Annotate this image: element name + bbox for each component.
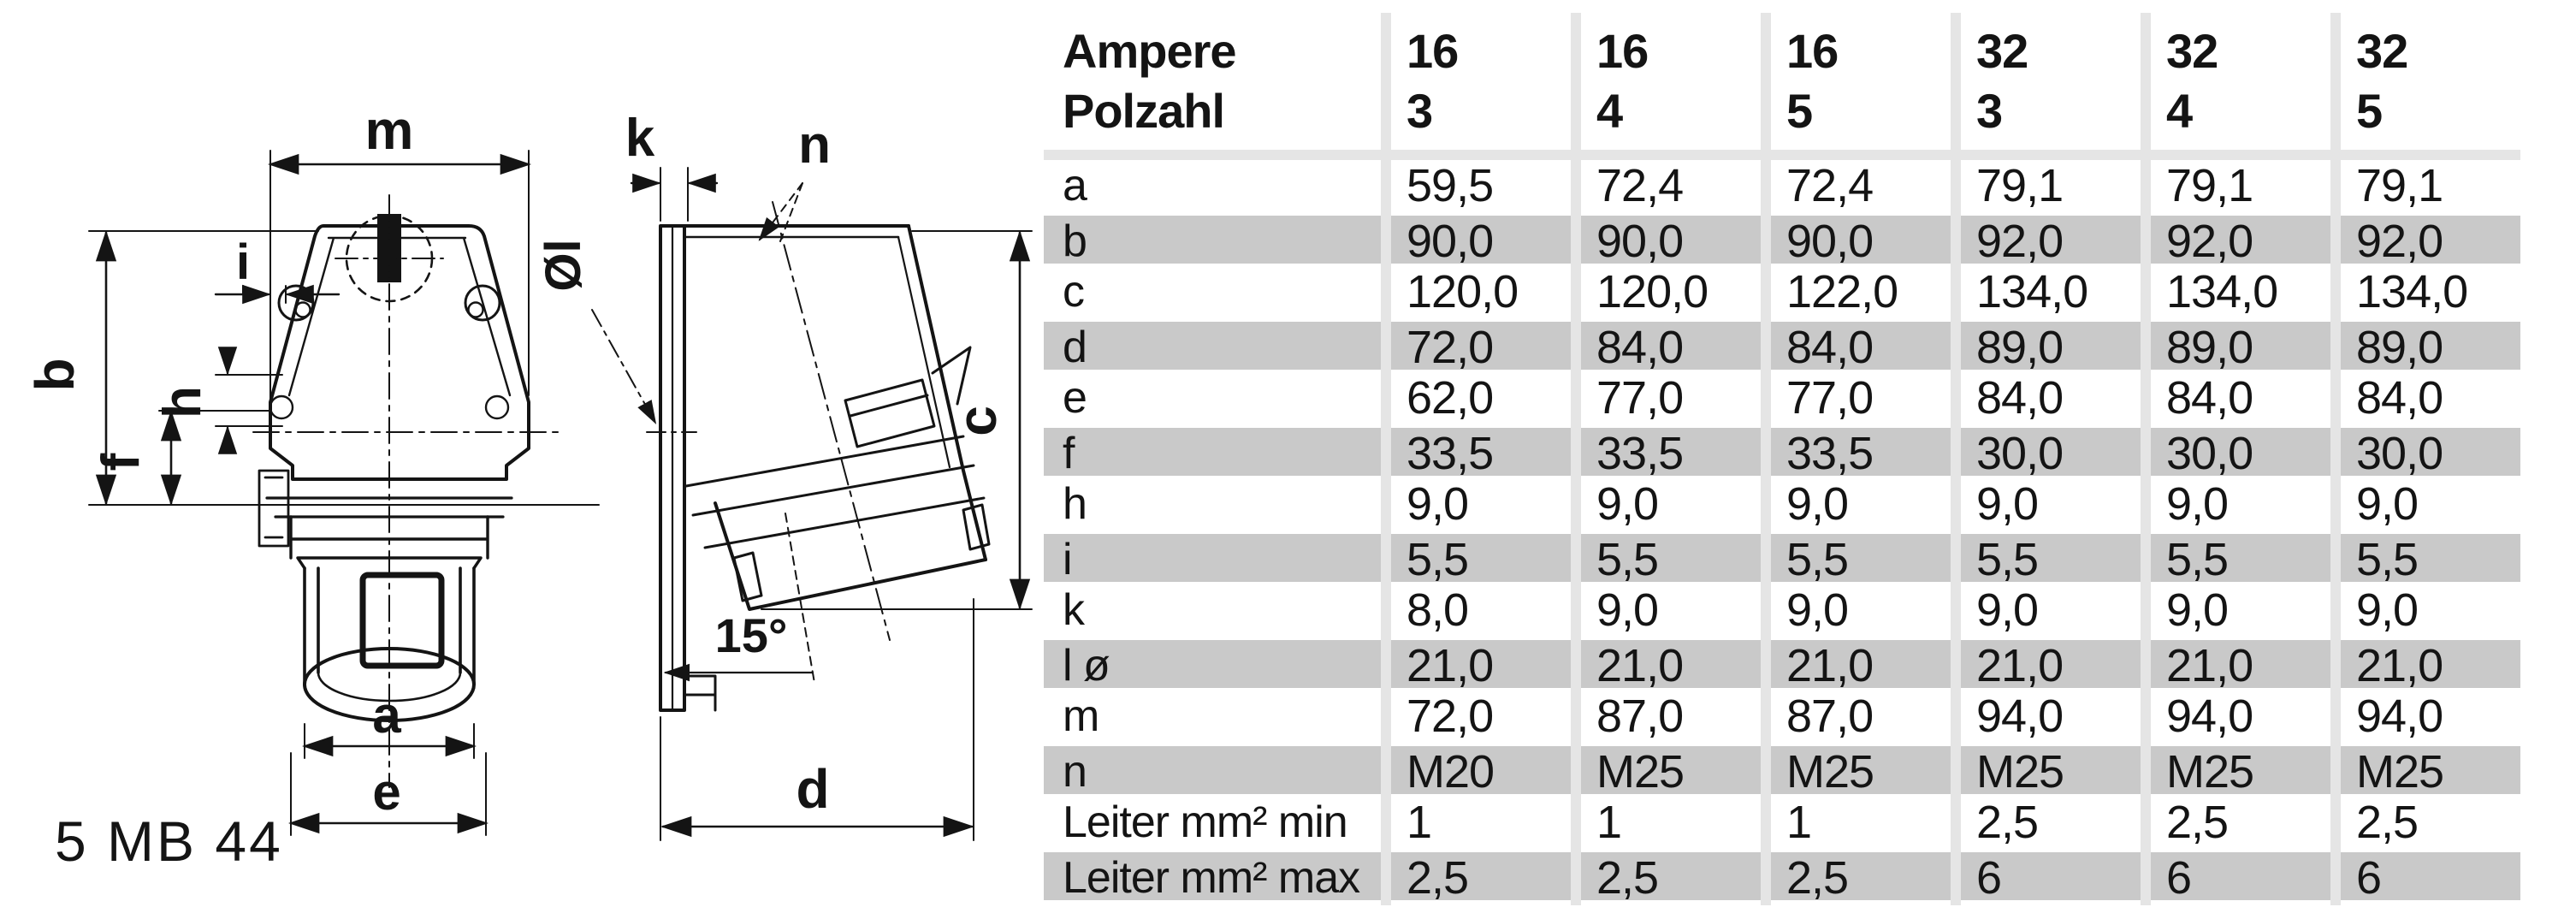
- table-cell: 120,0: [1571, 266, 1761, 319]
- column-header: 325: [2356, 21, 2407, 141]
- column-header: 165: [1786, 21, 1838, 141]
- table-row: k8,09,09,09,09,09,0: [1044, 584, 2520, 637]
- column-header-polzahl: 3: [1406, 81, 1458, 141]
- table-cell: 2,5: [1571, 850, 1761, 903]
- dim-label-f: f: [92, 453, 151, 471]
- column-header-ampere: 16: [1406, 21, 1458, 81]
- table-cell: 5,5: [1761, 531, 1951, 584]
- column-header: 163: [1406, 21, 1458, 141]
- header-row-labels: Ampere Polzahl: [1063, 21, 1236, 141]
- table-cell: 9,0: [2141, 478, 2330, 531]
- table-row: Leiter mm² max2,52,52,5666: [1044, 850, 2520, 903]
- column-header-polzahl: 5: [2356, 81, 2407, 141]
- table-cell: M25: [2141, 744, 2330, 797]
- row-label: c: [1044, 266, 1381, 319]
- table-cell: 9,0: [1571, 584, 1761, 637]
- header-polzahl-label: Polzahl: [1063, 81, 1236, 141]
- header-rule: [1044, 150, 2520, 160]
- table-cell: 87,0: [1571, 691, 1761, 744]
- tilt-axis-line: [773, 202, 890, 640]
- table-cell: M25: [1571, 744, 1761, 797]
- leader-l-diameter: [592, 310, 655, 423]
- column-header: 324: [2166, 21, 2218, 141]
- row-label: i: [1044, 531, 1381, 584]
- table-cell: 33,5: [1381, 425, 1571, 478]
- table-row: d72,084,084,089,089,089,0: [1044, 319, 2520, 372]
- row-label: Leiter mm² min: [1044, 797, 1381, 850]
- table-cell: 94,0: [2141, 691, 2330, 744]
- dimension-table: Ampere Polzahl 163164165323324325 a59,57…: [1044, 13, 2520, 905]
- dim-label-a: a: [372, 686, 401, 744]
- row-label: e: [1044, 372, 1381, 425]
- row-label: h: [1044, 478, 1381, 531]
- table-cell: 79,1: [2330, 160, 2520, 213]
- row-label: Leiter mm² max: [1044, 850, 1381, 903]
- dim-label-l-diameter: Øl: [536, 239, 591, 291]
- table-cell: 33,5: [1761, 425, 1951, 478]
- table-row: l ø21,021,021,021,021,021,0: [1044, 637, 2520, 691]
- table-cell: 62,0: [1381, 372, 1571, 425]
- table-cell: 72,4: [1761, 160, 1951, 213]
- dim-label-k: k: [625, 109, 655, 168]
- table-cell: 89,0: [2330, 319, 2520, 372]
- table-cell: M25: [1951, 744, 2141, 797]
- side-view: k n Øl c 15° d: [536, 109, 1032, 840]
- plate-foot: [684, 676, 715, 710]
- dim-label-b: b: [24, 358, 86, 391]
- dim-label-c: c: [946, 406, 1008, 436]
- dim-label-e: e: [372, 763, 400, 821]
- table-cell: 1: [1571, 797, 1761, 850]
- dim-label-i: i: [236, 234, 250, 290]
- table-cell: 89,0: [2141, 319, 2330, 372]
- table-cell: 84,0: [1761, 319, 1951, 372]
- spout-key-left: [734, 553, 761, 601]
- table-cell: 84,0: [2141, 372, 2330, 425]
- table-cell: 1: [1381, 797, 1571, 850]
- table-cell: 92,0: [1951, 213, 2141, 266]
- column-header-ampere: 32: [2356, 21, 2407, 81]
- row-label: n: [1044, 744, 1381, 797]
- table-row: a59,572,472,479,179,179,1: [1044, 160, 2520, 213]
- table-cell: 122,0: [1761, 266, 1951, 319]
- table-cell: 33,5: [1571, 425, 1761, 478]
- table-cell: 59,5: [1381, 160, 1571, 213]
- table-cell: 90,0: [1571, 213, 1761, 266]
- table-cell: 79,1: [2141, 160, 2330, 213]
- table-cell: 77,0: [1761, 372, 1951, 425]
- table-cell: 72,0: [1381, 691, 1571, 744]
- dim-label-h: h: [153, 386, 212, 418]
- table-cell: 9,0: [1761, 478, 1951, 531]
- table-header: Ampere Polzahl 163164165323324325: [1044, 13, 2520, 150]
- table-cell: 5,5: [1381, 531, 1571, 584]
- table-cell: 9,0: [2141, 584, 2330, 637]
- table-cell: 30,0: [2330, 425, 2520, 478]
- dim-label-m: m: [365, 99, 414, 161]
- column-header-polzahl: 4: [2166, 81, 2218, 141]
- dim-label-d: d: [796, 758, 829, 820]
- table-cell: 5,5: [2141, 531, 2330, 584]
- table-cell: 5,5: [1571, 531, 1761, 584]
- table-cell: 2,5: [1951, 797, 2141, 850]
- table-cell: 94,0: [2330, 691, 2520, 744]
- table-cell: 2,5: [1381, 850, 1571, 903]
- table-cell: 9,0: [1571, 478, 1761, 531]
- table-row: f33,533,533,530,030,030,0: [1044, 425, 2520, 478]
- table-cell: M25: [2330, 744, 2520, 797]
- header-ampere-label: Ampere: [1063, 21, 1236, 81]
- table-cell: 92,0: [2141, 213, 2330, 266]
- leader-n: [760, 183, 802, 240]
- table-cell: 30,0: [1951, 425, 2141, 478]
- table-cell: 21,0: [1571, 637, 1761, 691]
- table-cell: 72,4: [1571, 160, 1761, 213]
- table-cell: 90,0: [1761, 213, 1951, 266]
- row-label: l ø: [1044, 637, 1381, 691]
- table-cell: 84,0: [1571, 319, 1761, 372]
- column-header: 164: [1596, 21, 1648, 141]
- table-cell: 6: [2141, 850, 2330, 903]
- table-cell: 21,0: [1381, 637, 1571, 691]
- dim-label-n: n: [798, 116, 831, 175]
- table-row: m72,087,087,094,094,094,0: [1044, 691, 2520, 744]
- table-body: a59,572,472,479,179,179,1b90,090,090,092…: [1044, 160, 2520, 903]
- table-cell: 9,0: [1761, 584, 1951, 637]
- column-header-ampere: 16: [1786, 21, 1838, 81]
- leader-n2: [780, 183, 802, 241]
- gland-box: [845, 380, 934, 447]
- table-cell: 2,5: [1761, 850, 1951, 903]
- table-cell: 77,0: [1571, 372, 1761, 425]
- row-label: f: [1044, 425, 1381, 478]
- table-cell: 2,5: [2330, 797, 2520, 850]
- table-cell: 5,5: [1951, 531, 2141, 584]
- dim-k-ext: [660, 168, 688, 221]
- table-cell: 134,0: [2330, 266, 2520, 319]
- technical-drawing: m b i h f a e: [0, 0, 1061, 919]
- table-cell: 134,0: [1951, 266, 2141, 319]
- table-cell: 8,0: [1381, 584, 1571, 637]
- table-cell: 87,0: [1761, 691, 1951, 744]
- table-cell: 21,0: [1951, 637, 2141, 691]
- table-cell: 9,0: [2330, 584, 2520, 637]
- table-cell: 9,0: [1381, 478, 1571, 531]
- column-header-ampere: 16: [1596, 21, 1648, 81]
- row-label: a: [1044, 160, 1381, 213]
- table-cell: 1: [1761, 797, 1951, 850]
- column-header-ampere: 32: [1976, 21, 2028, 81]
- table-row: nM20M25M25M25M25M25: [1044, 744, 2520, 797]
- table-cell: M25: [1761, 744, 1951, 797]
- table-cell: 120,0: [1381, 266, 1571, 319]
- table-cell: 84,0: [2330, 372, 2520, 425]
- table-cell: 9,0: [1951, 584, 2141, 637]
- table-cell: 90,0: [1381, 213, 1571, 266]
- table-cell: 84,0: [1951, 372, 2141, 425]
- column-header-polzahl: 5: [1786, 81, 1838, 141]
- column-header-polzahl: 4: [1596, 81, 1648, 141]
- side-ear-right: [486, 396, 508, 418]
- row-label: k: [1044, 584, 1381, 637]
- table-cell: 72,0: [1381, 319, 1571, 372]
- side-spout: [715, 503, 986, 609]
- table-cell: 92,0: [2330, 213, 2520, 266]
- table-cell: 21,0: [2141, 637, 2330, 691]
- product-code: 5 MB 44: [55, 809, 283, 873]
- side-ear-left: [270, 396, 293, 418]
- table-row: Leiter mm² min1112,52,52,5: [1044, 797, 2520, 850]
- row-label: m: [1044, 691, 1381, 744]
- table-cell: 79,1: [1951, 160, 2141, 213]
- catalog-sheet: m b i h f a e: [0, 0, 2576, 919]
- table-cell: 89,0: [1951, 319, 2141, 372]
- table-row: b90,090,090,092,092,092,0: [1044, 213, 2520, 266]
- row-label: b: [1044, 213, 1381, 266]
- table-cell: 21,0: [1761, 637, 1951, 691]
- table-cell: 9,0: [2330, 478, 2520, 531]
- row-label: d: [1044, 319, 1381, 372]
- table-cell: M20: [1381, 744, 1571, 797]
- dim-b-ext: [89, 231, 599, 505]
- front-view: m b i h f a e: [24, 99, 599, 835]
- table-row: c120,0120,0122,0134,0134,0134,0: [1044, 266, 2520, 319]
- dim-label-angle: 15°: [715, 608, 788, 662]
- table-cell: 6: [1951, 850, 2141, 903]
- table-cell: 6: [2330, 850, 2520, 903]
- column-header-polzahl: 3: [1976, 81, 2028, 141]
- table-cell: 30,0: [2141, 425, 2330, 478]
- table-cell: 2,5: [2141, 797, 2330, 850]
- table-cell: 21,0: [2330, 637, 2520, 691]
- table-cell: 5,5: [2330, 531, 2520, 584]
- column-header-ampere: 32: [2166, 21, 2218, 81]
- table-cell: 134,0: [2141, 266, 2330, 319]
- side-bands: [686, 436, 984, 548]
- table-row: h9,09,09,09,09,09,0: [1044, 478, 2520, 531]
- mount-lug-left: [259, 471, 288, 546]
- table-row: i5,55,55,55,55,55,5: [1044, 531, 2520, 584]
- column-header: 323: [1976, 21, 2028, 141]
- table-row: e62,077,077,084,084,084,0: [1044, 372, 2520, 425]
- table-cell: 94,0: [1951, 691, 2141, 744]
- table-cell: 9,0: [1951, 478, 2141, 531]
